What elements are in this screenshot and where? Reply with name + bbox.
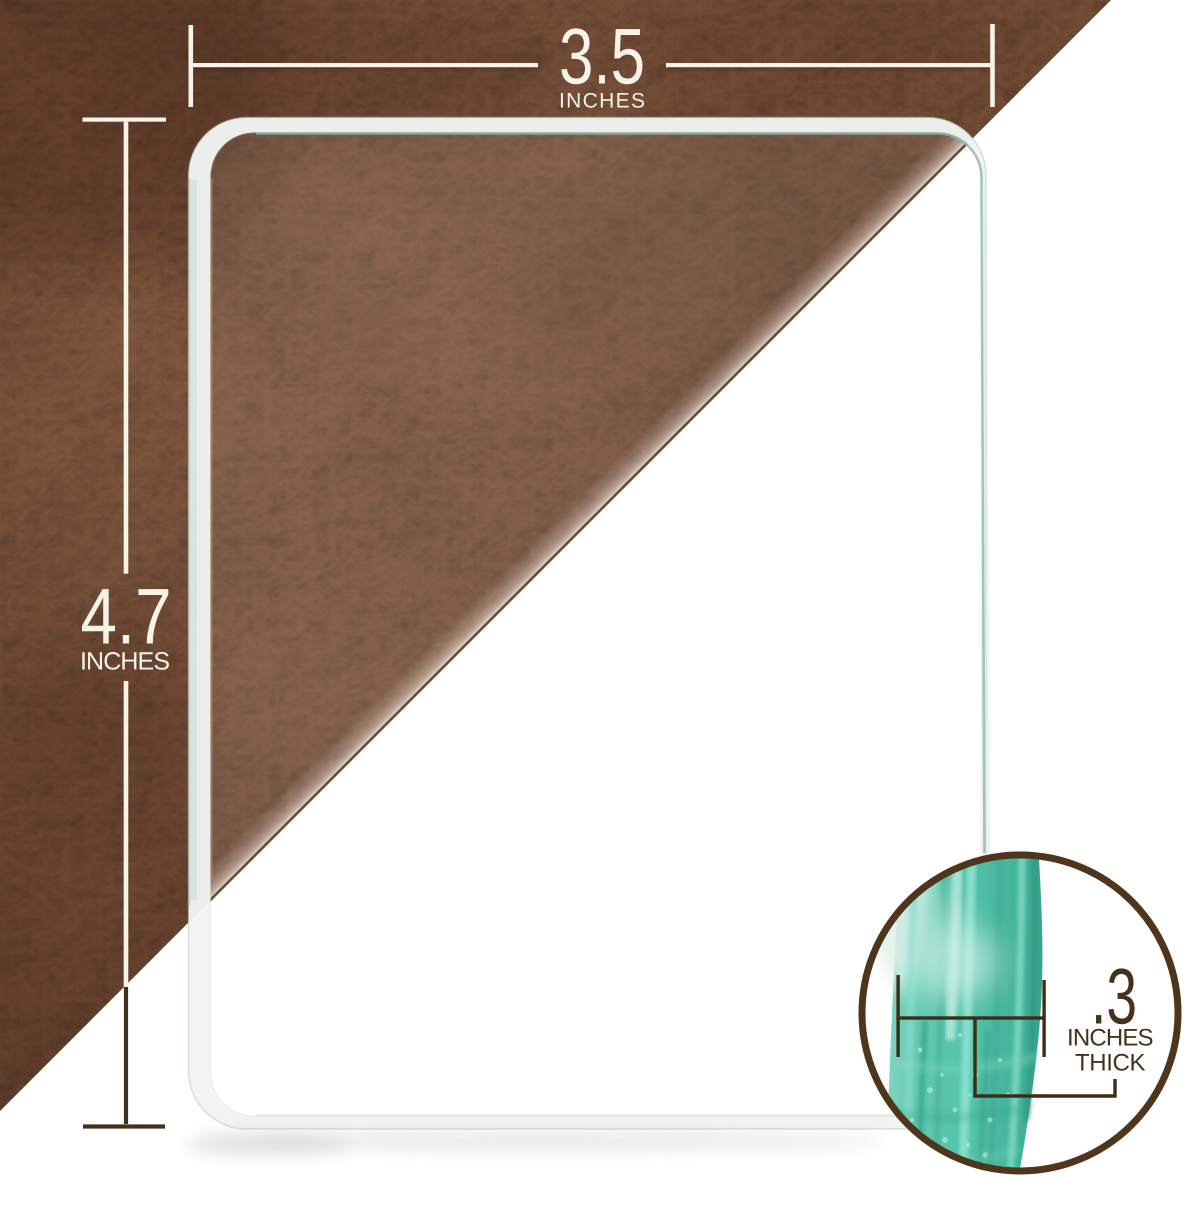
- svg-text:3.5: 3.5: [559, 12, 645, 101]
- svg-text:INCHES: INCHES: [80, 648, 172, 676]
- svg-text:INCHES: INCHES: [559, 90, 647, 113]
- svg-text:INCHES: INCHES: [1067, 1025, 1155, 1052]
- svg-text:THICK: THICK: [1075, 1049, 1147, 1076]
